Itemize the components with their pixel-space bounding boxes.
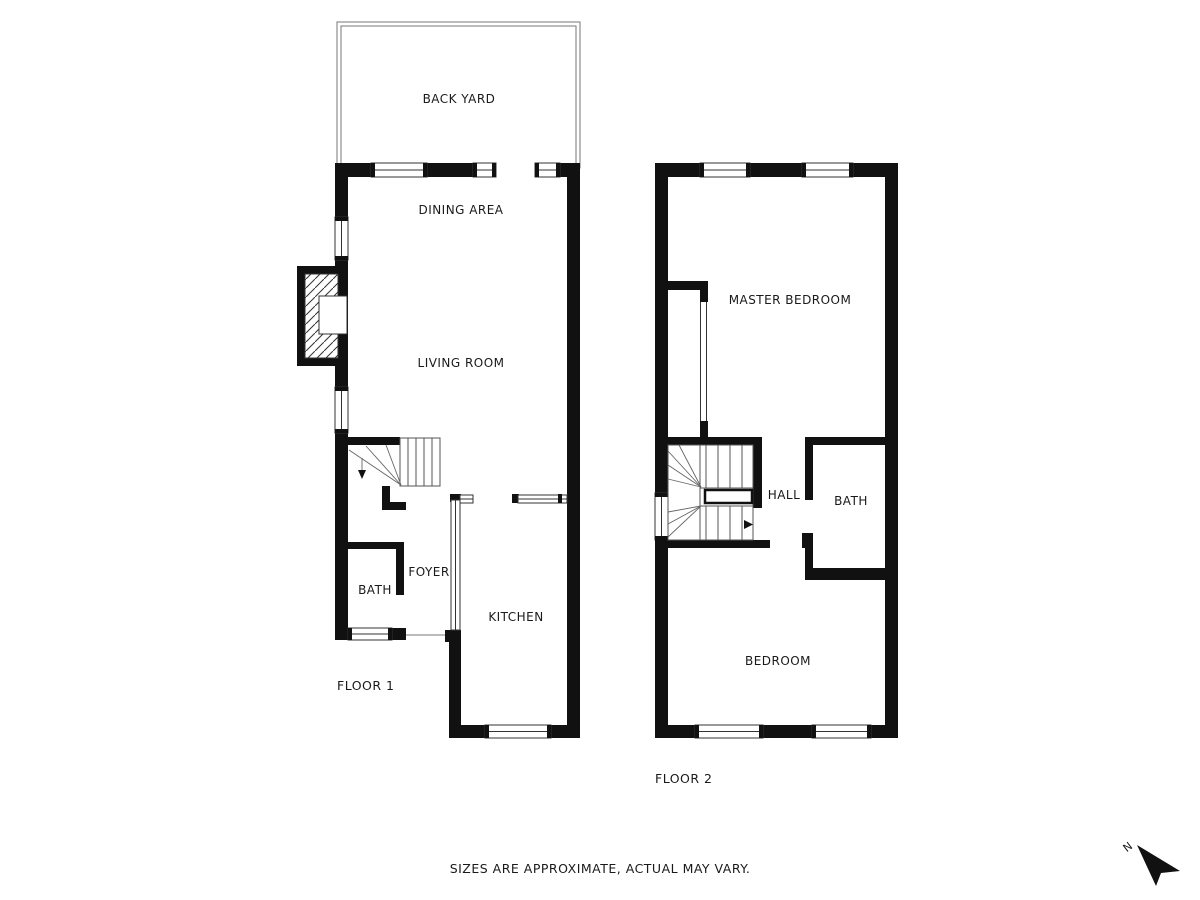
f2-top-window-2 <box>802 163 853 177</box>
f1-right-wall <box>567 163 580 737</box>
f1-backyard-door-opening <box>496 162 535 178</box>
disclaimer-text: SIZES ARE APPROXIMATE, ACTUAL MAY VARY. <box>450 861 751 876</box>
f1-kitchen-top-window-2 <box>512 494 567 503</box>
f1-kitchen-top-window-1 <box>460 495 473 503</box>
room-label-back-yard: BACK YARD <box>423 92 496 106</box>
floor2-plan: MASTER BEDROOM HALL BATH BEDROOM FLOOR 2 <box>655 163 898 786</box>
f2-left-wall <box>655 163 668 738</box>
stairs-floor1 <box>337 437 440 510</box>
f1-top-window-2 <box>473 163 496 177</box>
f2-bottom-window-2 <box>812 725 871 738</box>
f2-right-wall <box>885 163 898 738</box>
floor1-plan: BACK YARD DINING AREA LIVING ROOM FOYER … <box>297 22 580 738</box>
f1-top-window-1 <box>371 163 427 177</box>
f2-bottom-window-1 <box>695 725 763 738</box>
fireplace <box>297 266 347 366</box>
floor2-label: FLOOR 2 <box>655 771 713 786</box>
north-label: N <box>1121 840 1135 855</box>
room-label-living-room: LIVING ROOM <box>418 356 505 370</box>
f1-left-window-2 <box>335 387 348 433</box>
stairs-floor2 <box>668 445 753 540</box>
floor-plan-drawing: BACK YARD DINING AREA LIVING ROOM FOYER … <box>0 0 1200 900</box>
f1-bath-window <box>348 628 392 640</box>
f1-left-window-1 <box>335 217 348 260</box>
room-label-bath-f1: BATH <box>358 583 392 597</box>
room-label-dining-area: DINING AREA <box>418 203 503 217</box>
f2-top-wall <box>655 163 898 177</box>
f1-kitchen-bottom-window <box>485 725 551 738</box>
room-label-master-bedroom: MASTER BEDROOM <box>729 293 852 307</box>
north-arrow-icon <box>1137 845 1180 886</box>
f1-kitchen-side-window <box>450 494 461 630</box>
room-label-foyer: FOYER <box>408 565 449 579</box>
f2-left-window <box>655 493 668 540</box>
f2-top-window-1 <box>700 163 750 177</box>
room-label-kitchen: KITCHEN <box>488 610 543 624</box>
floor1-label: FLOOR 1 <box>337 678 395 693</box>
f1-top-window-3 <box>535 163 560 177</box>
room-label-bedroom: BEDROOM <box>745 654 811 668</box>
f1-kitchen-walls <box>445 630 580 738</box>
compass: N <box>1121 840 1180 886</box>
floor-plan-canvas: BACK YARD DINING AREA LIVING ROOM FOYER … <box>0 0 1200 900</box>
f2-bath-walls <box>802 437 898 580</box>
room-label-bath-f2: BATH <box>834 494 868 508</box>
room-label-hall: HALL <box>768 488 801 502</box>
